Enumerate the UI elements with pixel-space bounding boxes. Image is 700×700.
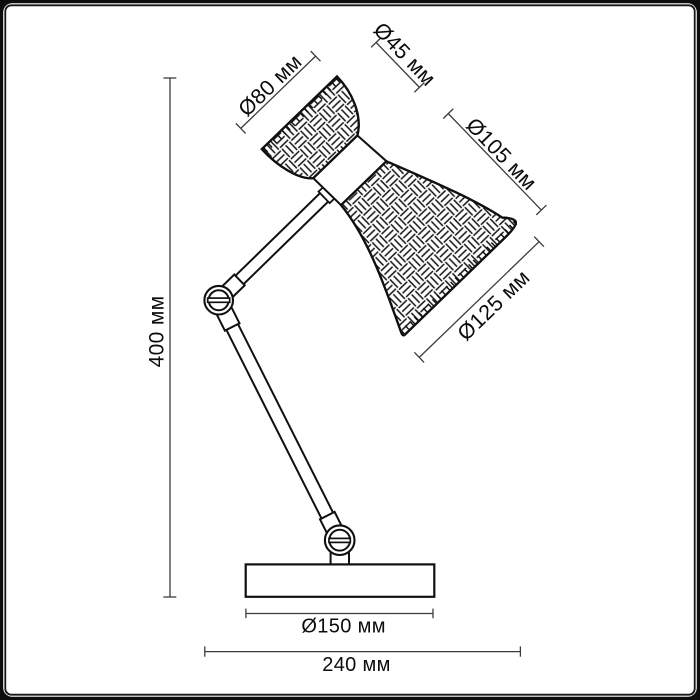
svg-text:400 мм: 400 мм (146, 296, 169, 368)
svg-text:Ø150 мм: Ø150 мм (301, 616, 385, 638)
svg-text:240 мм: 240 мм (322, 654, 391, 676)
